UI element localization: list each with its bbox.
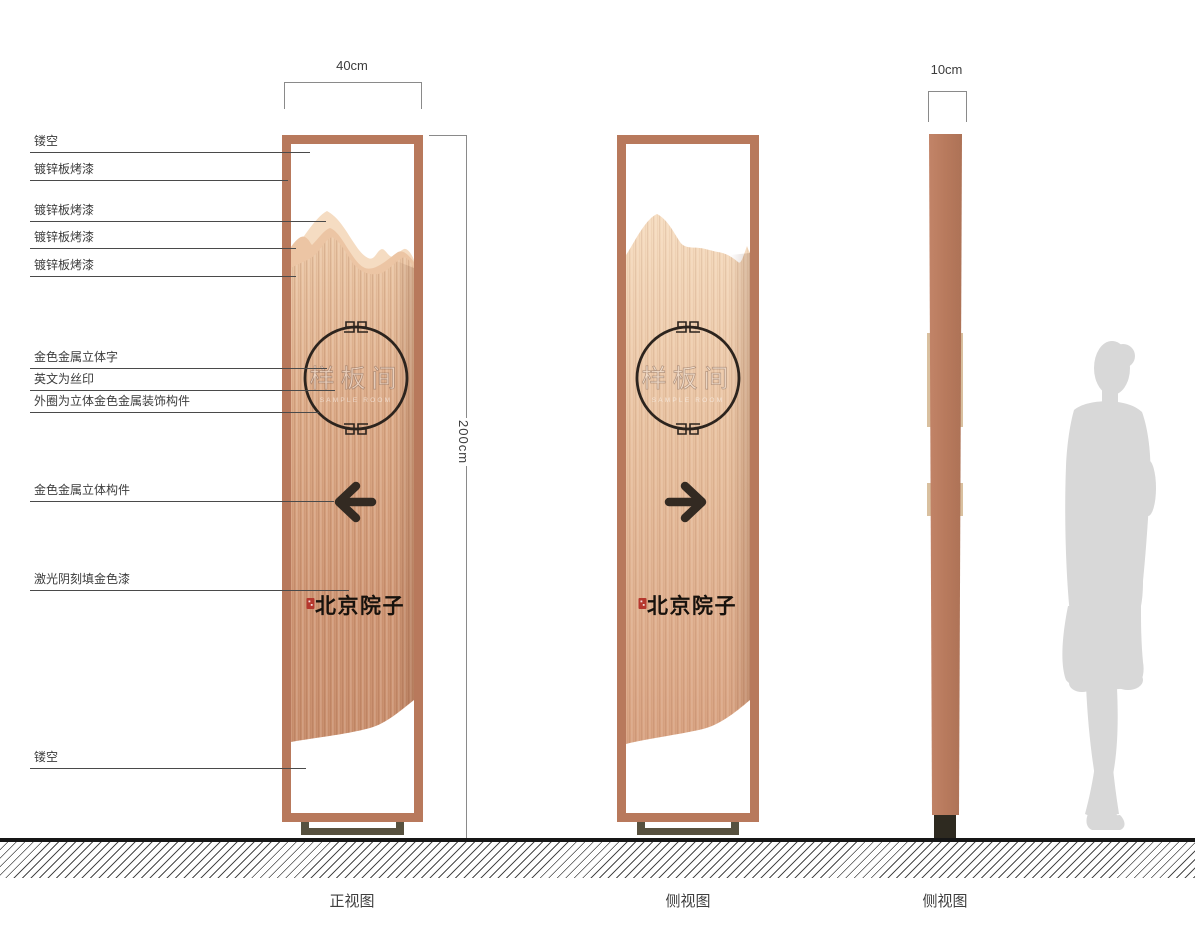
sign-body-edge-shade bbox=[730, 253, 750, 715]
sign-base-bracket bbox=[301, 822, 404, 835]
signage-design-drawing: 镂空 镀锌板烤漆 镀锌板烤漆 镀锌板烤漆 镀锌板烤漆 金色金属立体字 英文为丝印… bbox=[0, 0, 1195, 927]
person-silhouette bbox=[1062, 341, 1156, 830]
dim-side-thickness-bracket bbox=[928, 91, 967, 122]
callout-hollow-bottom: 镂空 bbox=[30, 750, 306, 769]
dim-height-top-tick bbox=[429, 135, 467, 136]
callout-hollow-top: 镂空 bbox=[30, 134, 310, 153]
ground-hatch bbox=[0, 838, 1195, 878]
caption-front-view: 正视图 bbox=[282, 890, 422, 911]
brand-name-text: 北京院子 bbox=[315, 594, 405, 618]
brand-name-text: 北京院子 bbox=[647, 594, 737, 618]
caption-side-view-2: 侧视图 bbox=[875, 890, 1015, 911]
room-name-text: 样板间 bbox=[641, 365, 734, 393]
dim-total-height-label: 200cm bbox=[456, 418, 471, 466]
sign-body-edge-shade bbox=[394, 260, 414, 715]
dim-height-line bbox=[466, 135, 467, 840]
room-name-english-text: SAMPLE ROOM bbox=[652, 397, 725, 404]
side-view-sign: 样板间 SAMPLE ROOM 北京院子 bbox=[617, 135, 759, 837]
callout-english-silkprint: 英文为丝印 bbox=[30, 372, 335, 391]
dim-front-width-bracket bbox=[284, 82, 422, 109]
side-profile-base bbox=[934, 815, 956, 838]
side-profile-column bbox=[929, 134, 962, 815]
callout-outer-ring-gold: 外圈为立体金色金属装饰构件 bbox=[30, 394, 319, 413]
callout-galvanized-2: 镀锌板烤漆 bbox=[30, 203, 326, 222]
callout-gold-3d-letters: 金色金属立体字 bbox=[30, 350, 327, 369]
sign-base-bracket bbox=[637, 822, 739, 835]
callout-galvanized-1: 镀锌板烤漆 bbox=[30, 162, 288, 181]
red-seal-stamp bbox=[307, 598, 315, 609]
callout-galvanized-3: 镀锌板烤漆 bbox=[30, 230, 296, 249]
callout-laser-engraved: 激光阴刻填金色漆 bbox=[30, 572, 349, 591]
caption-side-view-1: 侧视图 bbox=[618, 890, 758, 911]
seal-mark bbox=[643, 604, 645, 606]
red-seal-stamp bbox=[639, 598, 647, 609]
human-scale-silhouette bbox=[1030, 336, 1175, 836]
callout-gold-3d-component: 金色金属立体构件 bbox=[30, 483, 334, 502]
seal-mark bbox=[641, 601, 643, 603]
dim-front-width-label: 40cm bbox=[284, 58, 420, 73]
side-profile-sign bbox=[927, 133, 964, 845]
callout-galvanized-4: 镀锌板烤漆 bbox=[30, 258, 296, 277]
seal-mark bbox=[309, 601, 311, 603]
seal-mark bbox=[311, 604, 313, 606]
dim-side-thickness-label: 10cm bbox=[900, 62, 993, 77]
room-name-english-text: SAMPLE ROOM bbox=[320, 397, 393, 404]
